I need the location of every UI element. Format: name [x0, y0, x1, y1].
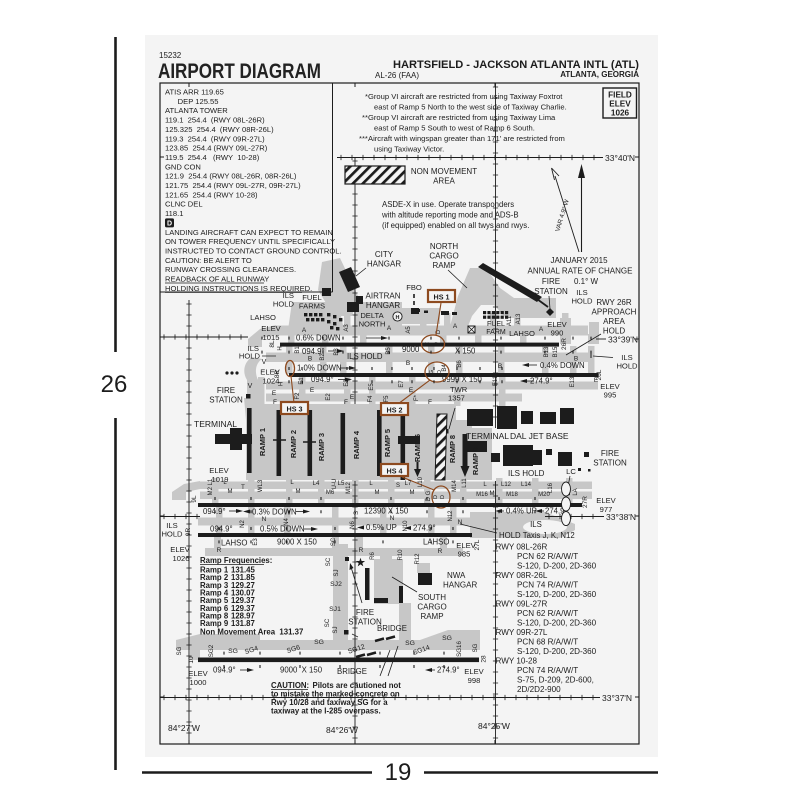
- svg-text:SC: SC: [331, 537, 337, 546]
- svg-text:L4: L4: [313, 481, 320, 487]
- svg-text:RUNWAY CROSSING CLEARANCES.: RUNWAY CROSSING CLEARANCES.: [165, 265, 296, 274]
- svg-text:FUEL: FUEL: [487, 321, 505, 328]
- svg-text:HOLD: HOLD: [616, 362, 638, 371]
- svg-text:FIRE: FIRE: [217, 386, 235, 395]
- svg-text:M: M: [228, 489, 233, 495]
- svg-text:N: N: [390, 515, 395, 522]
- svg-text:N6: N6: [350, 521, 356, 529]
- svg-text:(if equipped) enabled on all t: (if equipped) enabled on all twys and rw…: [382, 221, 529, 230]
- svg-text:E11: E11: [493, 375, 499, 386]
- svg-text:E: E: [594, 377, 599, 384]
- svg-text:131.87: 131.87: [231, 619, 255, 628]
- svg-text:0.6% DOWN: 0.6% DOWN: [296, 334, 341, 343]
- svg-text:HANGAR: HANGAR: [367, 260, 401, 269]
- svg-text:STATION: STATION: [534, 287, 568, 296]
- svg-text:NORTH: NORTH: [359, 320, 386, 329]
- svg-text:Group VI aircraft are restrict: Group VI aircraft are restricted from us…: [368, 113, 556, 122]
- svg-text:E13: E13: [570, 376, 576, 387]
- svg-text:H: H: [396, 315, 400, 321]
- svg-text:L7: L7: [405, 481, 412, 487]
- svg-text:998: 998: [468, 676, 481, 685]
- svg-text:ELEV: ELEV: [464, 667, 484, 676]
- svg-text:N: N: [262, 516, 267, 523]
- svg-text:PCN 74 R/A/W/T: PCN 74 R/A/W/T: [517, 581, 578, 590]
- svg-text:AREA: AREA: [603, 317, 625, 326]
- svg-text:SJ1: SJ1: [329, 606, 341, 613]
- svg-text:CAUTION: BE ALERT TO: CAUTION: BE ALERT TO: [165, 256, 252, 265]
- svg-text:094.9°: 094.9°: [311, 375, 334, 384]
- svg-text:HOLD: HOLD: [239, 352, 261, 361]
- svg-text:E: E: [272, 390, 277, 397]
- svg-text:ILS HOLD: ILS HOLD: [347, 352, 383, 361]
- svg-text:RAMP 5: RAMP 5: [383, 429, 392, 457]
- svg-text:SOUTH: SOUTH: [418, 593, 446, 602]
- svg-text:FIRE: FIRE: [542, 277, 560, 286]
- svg-text:1026: 1026: [611, 109, 630, 118]
- svg-text:RAMP 2: RAMP 2: [289, 430, 298, 458]
- svg-text:RWY 09R-27L: RWY 09R-27L: [496, 628, 548, 637]
- svg-text:Non Movement Area 131.37: Non Movement Area 131.37: [200, 628, 303, 637]
- svg-text:SG16: SG16: [456, 641, 463, 657]
- svg-text:ASDE-X in use. Operate transpo: ASDE-X in use. Operate transponders: [382, 200, 514, 209]
- svg-text:F2: F2: [295, 392, 301, 400]
- svg-text:SC: SC: [325, 557, 332, 566]
- svg-text:RWY 08L-26R: RWY 08L-26R: [496, 543, 548, 552]
- svg-text:1357: 1357: [448, 394, 465, 403]
- svg-text:TERMINAL: TERMINAL: [194, 419, 237, 429]
- svg-text:east of Ramp 5 North to the we: east of Ramp 5 North to the west side of…: [374, 103, 567, 112]
- svg-text:E2: E2: [326, 393, 332, 401]
- svg-text:84°27'W: 84°27'W: [168, 723, 200, 733]
- svg-text:N12: N12: [448, 510, 454, 522]
- svg-text:CARGO: CARGO: [429, 252, 458, 261]
- svg-text:990: 990: [551, 329, 564, 338]
- svg-text:274.9°: 274.9°: [437, 666, 460, 675]
- svg-text:GND CON: GND CON: [165, 162, 201, 171]
- svg-text:0.5% DOWN: 0.5% DOWN: [260, 525, 305, 534]
- svg-text:with altitude reporting mode a: with altitude reporting mode and ADS-B: [381, 211, 519, 220]
- svg-text:B1: B1: [295, 346, 301, 354]
- svg-text:FIRE: FIRE: [356, 608, 374, 617]
- svg-text:10: 10: [188, 656, 195, 664]
- svg-text:LC: LC: [566, 467, 576, 476]
- svg-text:L5: L5: [338, 481, 345, 487]
- svg-text:B3: B3: [334, 348, 340, 356]
- svg-text:M20: M20: [538, 492, 550, 498]
- svg-text:CARGO: CARGO: [417, 603, 446, 612]
- svg-text:1.0% DOWN: 1.0% DOWN: [297, 364, 342, 373]
- svg-text:E3: E3: [253, 538, 259, 546]
- svg-text:RAMP: RAMP: [420, 612, 443, 621]
- svg-text:PCN 62 R/A/W/T: PCN 62 R/A/W/T: [517, 552, 578, 561]
- svg-text:V: V: [248, 383, 253, 390]
- svg-text:INSTRUCTED TO CONTACT GROUND C: INSTRUCTED TO CONTACT GROUND CONTROL.: [165, 246, 342, 255]
- svg-text:R: R: [217, 547, 222, 554]
- svg-text:NON MOVEMENT: NON MOVEMENT: [411, 167, 477, 176]
- svg-text:D: D: [434, 342, 440, 346]
- svg-text:M12: M12: [346, 482, 352, 494]
- svg-text:M: M: [296, 489, 301, 495]
- svg-text:M18: M18: [506, 492, 518, 498]
- svg-text:9000: 9000: [402, 345, 420, 354]
- svg-text:RAMP: RAMP: [432, 261, 455, 270]
- svg-text:1000: 1000: [190, 678, 207, 687]
- svg-text:H: H: [279, 382, 285, 386]
- svg-text:A5: A5: [406, 326, 412, 334]
- svg-text:HANGAR: HANGAR: [366, 301, 400, 310]
- svg-text:A13: A13: [516, 313, 522, 324]
- svg-text:D: D: [167, 220, 172, 227]
- svg-text:0.5% UP: 0.5% UP: [366, 523, 397, 532]
- svg-text:FIRE: FIRE: [601, 449, 619, 458]
- svg-text:T: T: [241, 485, 245, 491]
- svg-text:STATION: STATION: [209, 396, 243, 405]
- svg-text:ELEV: ELEV: [261, 324, 281, 333]
- svg-text:S-120, D-200, 2D-360: S-120, D-200, 2D-360: [517, 647, 597, 656]
- svg-text:SG: SG: [472, 643, 479, 652]
- svg-text:HOLD: HOLD: [571, 297, 593, 306]
- svg-text:LANDING AIRCRAFT CAN EXPECT TO: LANDING AIRCRAFT CAN EXPECT TO REMAIN: [165, 228, 333, 237]
- svg-text:L12: L12: [501, 482, 512, 488]
- svg-text:STATION: STATION: [593, 459, 627, 468]
- svg-text:SC: SC: [324, 618, 331, 627]
- svg-text:274.9°: 274.9°: [413, 524, 436, 533]
- svg-text:84°26'W: 84°26'W: [326, 725, 358, 735]
- svg-text:WL3: WL3: [258, 479, 264, 492]
- svg-text:N2: N2: [240, 520, 246, 528]
- svg-text:977: 977: [600, 505, 613, 514]
- svg-text:ELEV: ELEV: [188, 669, 208, 678]
- svg-text:119.3 254.4 (RWY 09R-27L): 119.3 254.4 (RWY 09R-27L): [165, 134, 265, 143]
- svg-text:HANGAR: HANGAR: [443, 581, 477, 590]
- svg-text:FIELD: FIELD: [608, 91, 632, 100]
- svg-text:B15: B15: [553, 346, 559, 357]
- svg-text:PCN 62 R/A/W/T: PCN 62 R/A/W/T: [517, 609, 578, 618]
- svg-text:9R: 9R: [185, 528, 192, 537]
- svg-text:RAMP 4: RAMP 4: [352, 430, 361, 459]
- svg-text:PCN 68 R/A/W/T: PCN 68 R/A/W/T: [517, 638, 578, 647]
- svg-text:9000 X 150: 9000 X 150: [280, 666, 323, 675]
- svg-text:FBO: FBO: [406, 283, 422, 292]
- svg-text:LAHSO: LAHSO: [423, 538, 449, 547]
- svg-text:***: ***: [359, 134, 368, 143]
- svg-text:121.9 254.4 (RWY 08L-26R, 08R: 121.9 254.4 (RWY 08L-26R, 08R-26L): [165, 172, 297, 181]
- svg-text:S-120, D-200, 2D-360: S-120, D-200, 2D-360: [517, 590, 597, 599]
- svg-text:S-75, D-209, 2D-600,: S-75, D-209, 2D-600,: [517, 676, 594, 685]
- svg-text:LAHSO: LAHSO: [509, 329, 535, 338]
- svg-text:east of Ramp 5 South to west o: east of Ramp 5 South to west of Ramp 6 S…: [374, 124, 535, 133]
- svg-text:SG: SG: [405, 640, 415, 647]
- svg-text:RWY 08R-26L: RWY 08R-26L: [496, 571, 548, 580]
- svg-text:12390 X 150: 12390 X 150: [364, 507, 409, 516]
- svg-text:Aircraft with wingspan greater: Aircraft with wingspan greater than 171'…: [368, 134, 565, 143]
- svg-text:X 150: X 150: [455, 347, 476, 356]
- svg-text:L11: L11: [462, 478, 468, 488]
- svg-text:AIRTRAN: AIRTRAN: [366, 292, 401, 301]
- svg-text:26R: 26R: [561, 338, 568, 350]
- svg-text:9000 X 150: 9000 X 150: [277, 538, 318, 547]
- svg-text:RAMP 8: RAMP 8: [448, 435, 457, 463]
- svg-text:R6: R6: [370, 552, 376, 560]
- svg-text:M6: M6: [326, 490, 335, 496]
- svg-text:S-120, D-200, 2D-360: S-120, D-200, 2D-360: [517, 619, 597, 628]
- svg-text:ILS HOLD: ILS HOLD: [508, 469, 545, 478]
- svg-text:AIRPORT DIAGRAM: AIRPORT DIAGRAM: [158, 59, 321, 83]
- svg-text:A11: A11: [507, 315, 513, 326]
- svg-text:D: D: [440, 495, 446, 499]
- svg-text:26: 26: [101, 371, 128, 398]
- svg-text:SJ: SJ: [333, 569, 340, 576]
- svg-text:ATLANTA TOWER: ATLANTA TOWER: [165, 106, 228, 115]
- svg-text:33°37'N: 33°37'N: [602, 693, 632, 703]
- svg-text:HS 1: HS 1: [434, 293, 450, 302]
- svg-text:HS 3: HS 3: [287, 405, 303, 414]
- svg-text:119.5 254.4 (RWY 10-28): 119.5 254.4 (RWY 10-28): [165, 153, 260, 162]
- svg-text:SG2: SG2: [208, 644, 215, 657]
- svg-text:ILS: ILS: [530, 520, 542, 529]
- svg-text:9L: 9L: [191, 495, 198, 503]
- svg-text:B2: B2: [320, 353, 326, 361]
- svg-text:121.65 254.4 (RWY 10-28): 121.65 254.4 (RWY 10-28): [165, 190, 258, 199]
- svg-text:R10: R10: [398, 549, 404, 561]
- svg-text:RAMP 9: RAMP 9: [471, 447, 480, 475]
- svg-text:094.9°: 094.9°: [203, 507, 226, 516]
- svg-text:JANUARY 2015: JANUARY 2015: [550, 256, 608, 265]
- svg-text:E: E: [350, 394, 355, 401]
- svg-text:SJ2: SJ2: [330, 581, 342, 588]
- svg-text:HOLD Taxis J, K, N12: HOLD Taxis J, K, N12: [499, 531, 575, 540]
- svg-text:HS 2: HS 2: [387, 406, 403, 415]
- svg-text:121.75 254.4 (RWY 09L-27R, 09: 121.75 254.4 (RWY 09L-27R, 09R-27L): [165, 181, 301, 190]
- svg-text:19: 19: [385, 759, 412, 786]
- svg-text:SG: SG: [176, 646, 183, 655]
- svg-text:using Taxiway Victor.: using Taxiway Victor.: [374, 145, 444, 154]
- svg-text:M: M: [375, 490, 380, 496]
- svg-text:LAHSO: LAHSO: [250, 313, 276, 322]
- svg-text:B: B: [406, 360, 410, 367]
- svg-text:M: M: [410, 490, 415, 496]
- svg-text:RAMP 3: RAMP 3: [317, 433, 326, 461]
- svg-text:33°40'N: 33°40'N: [605, 153, 635, 163]
- svg-text:1026: 1026: [173, 554, 190, 563]
- svg-text:0.4% UP: 0.4% UP: [506, 507, 537, 516]
- svg-text:123.85 254.4 (RWY 09L-27R): 123.85 254.4 (RWY 09L-27R): [165, 144, 268, 153]
- svg-text:N: N: [458, 519, 463, 526]
- svg-text:RWY 09L-27R: RWY 09L-27R: [496, 600, 548, 609]
- svg-text:B6: B6: [457, 360, 463, 368]
- svg-text:LAHSO: LAHSO: [221, 539, 247, 548]
- svg-text:HOLD: HOLD: [603, 327, 625, 336]
- svg-text:8L: 8L: [269, 340, 276, 348]
- svg-text:B: B: [308, 356, 312, 363]
- svg-text:E5: E5: [369, 383, 375, 391]
- svg-text:A3: A3: [344, 324, 350, 332]
- svg-text:RWY 26R: RWY 26R: [596, 298, 631, 307]
- svg-text:C: C: [425, 342, 431, 346]
- svg-text:ELEV: ELEV: [609, 100, 631, 109]
- svg-text:NWA: NWA: [447, 571, 466, 580]
- svg-text:F4: F4: [368, 395, 374, 403]
- svg-text:RAMP 6: RAMP 6: [413, 434, 422, 462]
- svg-text:ANNUAL RATE OF CHANGE: ANNUAL RATE OF CHANGE: [528, 267, 633, 276]
- svg-text:84°25'W: 84°25'W: [478, 721, 510, 731]
- svg-text:995: 995: [604, 391, 617, 400]
- svg-text:F*: F*: [414, 394, 420, 401]
- svg-text:ELEV: ELEV: [170, 545, 190, 554]
- svg-text:E: E: [310, 387, 315, 394]
- svg-text:READBACK OF ALL RUNWAY: READBACK OF ALL RUNWAY: [165, 275, 269, 284]
- svg-text:ON TOWER FREQUENCY UNTIL SPECI: ON TOWER FREQUENCY UNTIL SPECIFICALLY: [165, 237, 335, 246]
- svg-text:Ramp Frequencies:: Ramp Frequencies:: [200, 556, 272, 565]
- svg-text:HOLD: HOLD: [273, 300, 295, 309]
- svg-text:R12: R12: [415, 553, 421, 565]
- svg-text:PCN 74 R/A/W/T: PCN 74 R/A/W/T: [517, 666, 578, 675]
- svg-text:Group VI aircraft are restrict: Group VI aircraft are restricted from us…: [368, 92, 563, 101]
- svg-text:F: F: [273, 399, 277, 406]
- svg-text:RWY 10-28: RWY 10-28: [496, 657, 538, 666]
- svg-text:M16: M16: [476, 492, 488, 498]
- svg-text:SJ: SJ: [332, 626, 339, 633]
- svg-text:0.1° W: 0.1° W: [574, 277, 599, 286]
- svg-text:119.1 254.4 (RWY 08L-26R): 119.1 254.4 (RWY 08L-26R): [165, 116, 265, 125]
- svg-text:BRIDGE: BRIDGE: [337, 667, 367, 676]
- svg-text:FARM: FARM: [486, 329, 506, 336]
- svg-text:taxiway at the I-285 overpass.: taxiway at the I-285 overpass.: [271, 707, 381, 716]
- svg-text:LA: LA: [573, 488, 579, 495]
- svg-text:27R: 27R: [582, 496, 589, 508]
- svg-text:094.9°: 094.9°: [210, 525, 233, 534]
- svg-text:N10: N10: [403, 520, 409, 532]
- svg-text:ATIS ARR 119.65: ATIS ARR 119.65: [165, 88, 224, 97]
- svg-text:125.325 254.4 (RWY 08R-26L): 125.325 254.4 (RWY 08R-26L): [165, 125, 274, 134]
- svg-text:F: F: [428, 399, 432, 406]
- svg-text:B: B: [574, 356, 578, 363]
- svg-text:E7: E7: [399, 380, 405, 388]
- svg-text:L14: L14: [521, 482, 532, 488]
- svg-text:F5: F5: [384, 395, 390, 403]
- svg-text:G: G: [429, 370, 435, 374]
- svg-text:Ramp 9: Ramp 9: [200, 619, 229, 628]
- svg-text:F: F: [344, 399, 348, 406]
- svg-text:985: 985: [458, 550, 471, 559]
- svg-text:APPROACH: APPROACH: [592, 308, 637, 317]
- svg-text:M14: M14: [452, 480, 458, 492]
- svg-text:SG: SG: [228, 648, 238, 655]
- svg-text:L10: L10: [418, 476, 424, 487]
- svg-text:TERMINAL: TERMINAL: [466, 431, 509, 441]
- svg-text:HOLD: HOLD: [161, 530, 183, 539]
- svg-text:SG: SG: [314, 639, 324, 646]
- svg-text:118.1: 118.1: [165, 209, 183, 218]
- svg-text:AL-26 (FAA): AL-26 (FAA): [375, 71, 419, 80]
- svg-text:CITY: CITY: [375, 250, 394, 259]
- svg-text:S-120, D-200, 2D-360: S-120, D-200, 2D-360: [517, 562, 597, 571]
- svg-text:AREA: AREA: [433, 177, 455, 186]
- svg-text:DEP 125.55: DEP 125.55: [165, 97, 218, 106]
- svg-text:D: D: [433, 495, 439, 499]
- svg-text:A: A: [387, 325, 392, 332]
- svg-text:A: A: [453, 323, 458, 330]
- svg-text:DAL JET BASE: DAL JET BASE: [510, 431, 569, 441]
- svg-text:ATLANTA, GEORGIA: ATLANTA, GEORGIA: [560, 70, 639, 79]
- svg-text:0.3% DOWN: 0.3% DOWN: [252, 508, 297, 517]
- svg-text:D: D: [437, 370, 443, 374]
- svg-text:CLNC DEL: CLNC DEL: [165, 200, 203, 209]
- svg-text:ELEV: ELEV: [209, 466, 229, 475]
- svg-text:RAMP 1: RAMP 1: [258, 428, 267, 456]
- svg-text:R: R: [359, 547, 364, 554]
- svg-text:M: M: [490, 491, 495, 497]
- svg-text:R: R: [438, 548, 443, 555]
- svg-text:SG: SG: [442, 635, 452, 642]
- svg-text:ELEV: ELEV: [596, 496, 616, 505]
- svg-text:A: A: [539, 326, 544, 333]
- svg-text:V: V: [262, 359, 267, 366]
- svg-text:2D/2D2-900: 2D/2D2-900: [517, 685, 561, 694]
- svg-text:S: S: [396, 483, 400, 489]
- svg-text:1019: 1019: [212, 475, 229, 484]
- svg-text:FARMS: FARMS: [299, 302, 325, 311]
- svg-text:BRIDGE: BRIDGE: [377, 624, 407, 633]
- svg-text:33°39'N: 33°39'N: [608, 335, 638, 345]
- svg-text:NORTH: NORTH: [430, 242, 459, 251]
- svg-text:HS 4: HS 4: [387, 467, 403, 476]
- svg-text:28: 28: [481, 655, 488, 663]
- svg-text:8R: 8R: [274, 370, 281, 379]
- svg-text:H: H: [278, 346, 284, 350]
